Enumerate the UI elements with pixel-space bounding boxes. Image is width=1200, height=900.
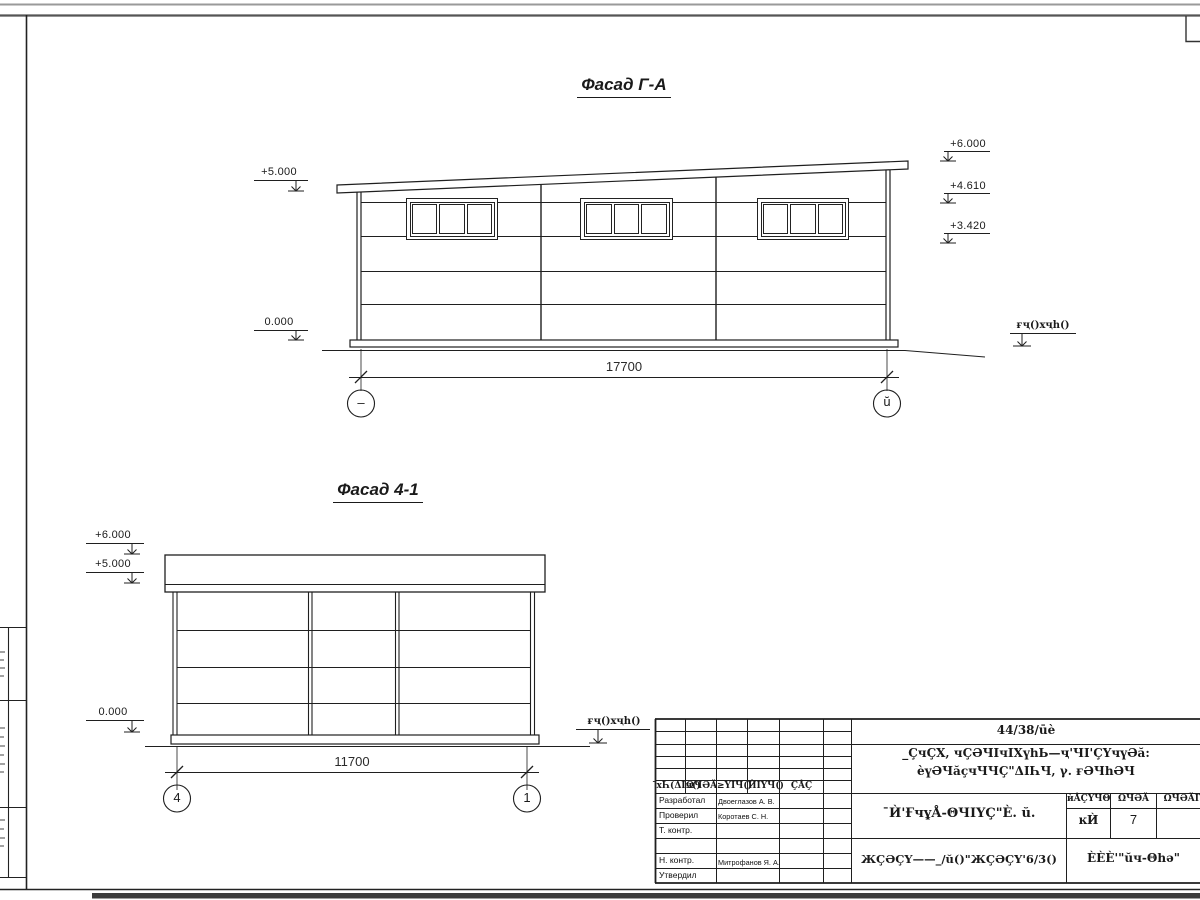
window-pane bbox=[412, 204, 437, 234]
stage-column-label: ѝÅÇҮЧΘ bbox=[1067, 795, 1110, 805]
project-name-line2: ѐүӘЧăçчЧЧÇ"ΔIҺЧ, γ. ғӘЧһӘЧ bbox=[852, 765, 1200, 778]
sheets-total-column-label: ΩЧӘĂIҮ bbox=[1157, 795, 1200, 805]
window-frame bbox=[410, 202, 495, 237]
window-pane bbox=[818, 204, 843, 234]
axis-marker-label: – bbox=[347, 396, 375, 410]
elevation-label: +5.000 bbox=[252, 166, 306, 178]
window-pane bbox=[467, 204, 492, 234]
dimension-label: 17700 bbox=[574, 360, 674, 374]
facade-41-linework bbox=[145, 555, 590, 747]
window-pane bbox=[614, 204, 640, 234]
tb-name: Двоеглазов А. В. bbox=[718, 798, 775, 806]
axis-marker-label: ŭ bbox=[873, 395, 901, 409]
tb-header-cell: ≥ҮIЧ() bbox=[717, 782, 747, 792]
axis-marker-label: 1 bbox=[513, 791, 541, 805]
window bbox=[406, 198, 498, 240]
facade-41-title: Фасад 4-1 bbox=[320, 481, 436, 503]
window-pane bbox=[439, 204, 464, 234]
tb-role: Утвердил bbox=[659, 871, 697, 880]
ground-level-label: ғҷ()хҷһ() bbox=[578, 716, 650, 727]
sheet-name: ¯Ѝ'ҒчұÅ-ΘЧIҮÇ"È. ŭ. bbox=[852, 807, 1066, 821]
tb-header-cell: ¯хҺ(ΔIч() bbox=[652, 782, 688, 792]
tb-role: Разработал bbox=[659, 796, 705, 805]
elevation-label: +5.000 bbox=[86, 558, 140, 570]
drawing-sheet: Фасад Г-А +5.000 0.000 +6.000 +4.610 +3.… bbox=[0, 0, 1200, 900]
elevation-label: +3.420 bbox=[946, 220, 990, 232]
company-name: ÈÈÈ'"ŭч-Θһә" bbox=[1067, 852, 1200, 865]
window-pane bbox=[790, 204, 815, 234]
project-name-line1: _ÇчÇХ, чÇӘЧIчIХүһЬ—ҷ'ЧI'ÇҮчүӘă: bbox=[852, 747, 1200, 760]
window-pane bbox=[763, 204, 788, 234]
tb-role: Т. контр. bbox=[659, 826, 692, 835]
elevation-label: +6.000 bbox=[946, 138, 990, 150]
elevation-label: 0.000 bbox=[86, 706, 140, 718]
window bbox=[580, 198, 673, 240]
doc-code: ЖÇӘÇҮ——_/ŭ()"ЖÇӘÇҮ'6/3() bbox=[852, 853, 1066, 866]
window-frame bbox=[584, 202, 670, 237]
tb-header-cell: ÇÅÇ bbox=[780, 782, 823, 792]
tb-name: Митрофанов Я. А. bbox=[718, 859, 780, 867]
dimension-label: 11700 bbox=[302, 755, 402, 769]
ground-level-label: ғҷ()хҷһ() bbox=[1010, 320, 1076, 331]
facade-ga-title: Фасад Г-А bbox=[569, 76, 679, 98]
elevation-label: +6.000 bbox=[86, 529, 140, 541]
doc-number: 44/38/ūè bbox=[852, 724, 1200, 737]
elevation-label: +4.610 bbox=[946, 180, 990, 192]
window bbox=[757, 198, 849, 240]
tb-header-cell: ΩЧӘĂ bbox=[686, 782, 716, 792]
elevation-label: 0.000 bbox=[252, 316, 306, 328]
stage-value: ĸЍ bbox=[1067, 814, 1110, 827]
tb-role: Проверил bbox=[659, 811, 698, 820]
facade-ga-linework bbox=[322, 161, 985, 357]
facade-ga-title-text: Фасад Г-А bbox=[577, 76, 670, 98]
window-frame bbox=[761, 202, 846, 237]
tb-role: Н. контр. bbox=[659, 856, 694, 865]
sheet-column-label: ΩЧӘĂ bbox=[1111, 795, 1156, 805]
sheet-number: 7 bbox=[1111, 813, 1156, 827]
tb-header-cell: ЍIҮЧ() bbox=[748, 782, 779, 792]
window-pane bbox=[641, 204, 667, 234]
tb-name: Коротаев С. Н. bbox=[718, 813, 768, 821]
facade-41-title-text: Фасад 4-1 bbox=[333, 481, 422, 503]
window-pane bbox=[586, 204, 612, 234]
axis-marker-label: 4 bbox=[163, 791, 191, 805]
